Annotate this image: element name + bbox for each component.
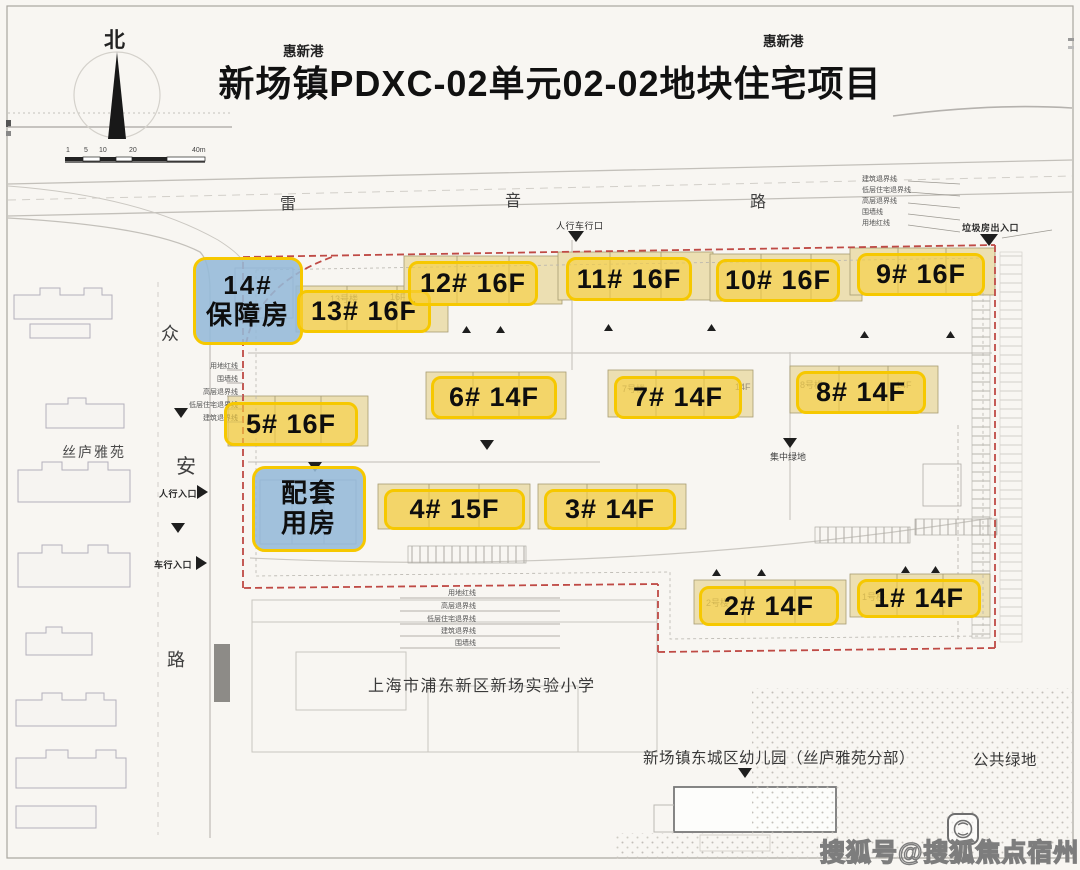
street-top-char-3: 路: [750, 188, 766, 212]
building-14-type: 保障房: [206, 301, 290, 331]
scale-bar: 1 5 10 20 40m: [65, 147, 206, 162]
svg-text:围墙线: 围墙线: [862, 207, 883, 216]
svg-text:低层住宅退界线: 低层住宅退界线: [427, 614, 476, 623]
north-compass: [74, 52, 160, 139]
svg-text:20: 20: [129, 147, 137, 154]
street-top-char-2: 音: [505, 187, 521, 211]
svg-text:高层退界线: 高层退界线: [441, 601, 476, 610]
school-label: 上海市浦东新区新场实验小学: [368, 672, 596, 696]
neighbor-buildings-west: [14, 288, 130, 828]
svg-text:用地红线: 用地红线: [862, 218, 890, 227]
kindergarten-label: 新场镇东城区幼儿园（丝庐雅苑分部）: [643, 746, 915, 768]
amenity-building-label: 配套 用房: [252, 466, 366, 552]
central-green-label: 集中绿地: [770, 450, 806, 463]
building-label-14-affordable: 14# 保障房: [193, 257, 303, 345]
watermark-text: 搜狐号@搜狐焦点宿州站: [820, 833, 1080, 870]
building-14-number: 14#: [223, 271, 272, 301]
amenity-line-1: 配套: [281, 479, 337, 509]
street-west-char-1: 众: [161, 320, 179, 346]
north-label: 北: [104, 24, 125, 54]
vehicle-gate-label: 车行入口: [154, 558, 192, 571]
building-label-1: 1# 14F: [857, 579, 981, 618]
building-label-4: 4# 15F: [384, 489, 525, 530]
amenity-line-2: 用房: [281, 509, 337, 539]
svg-text:用地红线: 用地红线: [448, 588, 476, 597]
svg-text:高层退界线: 高层退界线: [203, 387, 238, 396]
svg-text:高层退界线: 高层退界线: [862, 196, 897, 205]
boundary-legend-right: 建筑退界线 低层住宅退界线 高层退界线 围墙线 用地红线: [862, 174, 911, 227]
building-label-10: 10# 16F: [716, 259, 840, 302]
garbage-room-gate-label: 垃圾房出入口: [962, 221, 1019, 234]
building-label-2: 2# 14F: [699, 586, 839, 626]
site-plan-page: 1 5 10 20 40m: [0, 0, 1080, 870]
building-label-11: 11# 16F: [566, 257, 692, 301]
page-title: 新场镇PDXC-02单元02-02地块住宅项目: [170, 55, 930, 107]
svg-text:5: 5: [84, 147, 88, 154]
svg-text:建筑退界线: 建筑退界线: [441, 626, 476, 635]
svg-text:围墙线: 围墙线: [217, 374, 238, 383]
svg-text:建筑退界线: 建筑退界线: [862, 174, 897, 183]
public-green-label: 公共绿地: [973, 748, 1037, 770]
building-label-7: 7# 14F: [614, 376, 742, 419]
pedestrian-vehicle-gate-label: 人行车行口: [556, 219, 604, 232]
svg-text:围墙线: 围墙线: [455, 638, 476, 647]
svg-text:用地红线: 用地红线: [210, 361, 238, 370]
svg-text:1: 1: [66, 147, 70, 154]
boundary-legend-bottom: 用地红线 高层退界线 低层住宅退界线 建筑退界线 围墙线: [427, 588, 476, 647]
street-top-char-1: 雷: [280, 190, 296, 214]
building-label-8: 8# 14F: [796, 371, 926, 414]
street-west-char-2: 安: [176, 450, 196, 479]
street-west-char-3: 路: [167, 646, 185, 672]
svg-text:10: 10: [99, 147, 107, 154]
site-plan-drawing: 1 5 10 20 40m: [0, 0, 1080, 870]
svg-text:低层住宅退界线: 低层住宅退界线: [862, 185, 911, 194]
building-label-3: 3# 14F: [544, 489, 676, 530]
pedestrian-gate-label: 人行入口: [159, 487, 197, 500]
building-label-5: 5# 16F: [224, 402, 358, 446]
building-label-9: 9# 16F: [857, 253, 985, 296]
building-label-12: 12# 16F: [408, 261, 538, 306]
building-label-6: 6# 14F: [431, 376, 557, 419]
west-estate-label: 丝庐雅苑: [62, 442, 126, 462]
canal-label-right: 惠新港: [763, 30, 804, 50]
svg-text:40m: 40m: [192, 147, 206, 154]
